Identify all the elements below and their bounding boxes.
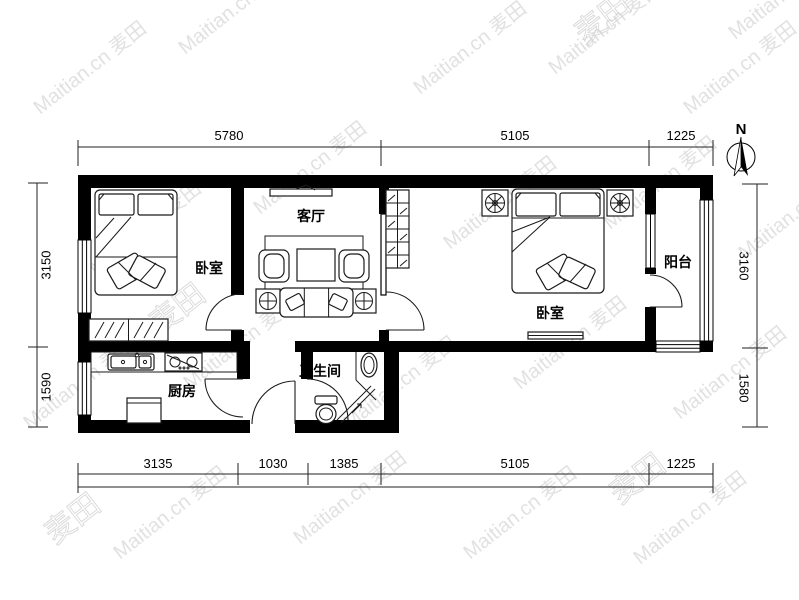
wall-balcony-sep-bottom: [645, 307, 656, 352]
window-balcony-right: [700, 200, 713, 341]
watermark-text: Maitian.cn 麦田: [174, 0, 296, 59]
door-bedroom-left: [206, 294, 242, 330]
toilet: [315, 396, 337, 424]
watermark-text: Maitian.cn 麦田: [409, 0, 531, 99]
room-label-kitchen: 厨房: [168, 383, 196, 399]
window-kitchen: [78, 362, 91, 415]
sofa: [280, 288, 353, 317]
bed-right: [512, 189, 604, 293]
watermark-text: Maitian.cn 麦田: [669, 322, 791, 424]
kitchen-appliance: [127, 398, 161, 423]
window-balcony-bottom: [656, 341, 700, 352]
kitchen-stove: [165, 353, 202, 371]
room-label-balcony: 阳台: [664, 254, 692, 270]
side-table-right: [352, 289, 376, 313]
nightstand-fan-left: [482, 190, 508, 216]
watermark-text: Maitian.cn 麦田: [734, 162, 799, 264]
door-bedroom-right: [386, 292, 424, 330]
room-label-bedroom-left: 卧室: [195, 260, 223, 276]
wardrobe: [386, 190, 409, 268]
wall-mid-bath-top: [295, 341, 397, 352]
nightstand-fan-right: [607, 190, 633, 216]
wall-balcony-sep-top: [645, 188, 656, 214]
room-label-bedroom-right: 卧室: [536, 305, 564, 321]
dim-top-5780: 5780: [215, 128, 244, 143]
wall-balcony-right-top: [700, 188, 713, 200]
side-table-left: [256, 289, 280, 313]
dim-bottom-1030: 1030: [259, 456, 288, 471]
coffee-table: [297, 249, 335, 281]
door-balcony: [650, 275, 682, 307]
floorplan-canvas: Maitian.cn 麦田 Maitian.cn 麦田 Maitian.cn 麦…: [0, 0, 799, 600]
heater-bedroom-right: [528, 332, 583, 339]
compass-needle-light: [734, 137, 741, 176]
watermark-logo: 麦田: [39, 488, 107, 551]
wall-bedroomR-bottom: [386, 341, 645, 352]
window-balcony-separator: [646, 214, 655, 268]
watermark-text: Maitian.cn 麦田: [459, 462, 581, 564]
wall-kitchen-right: [237, 352, 250, 379]
watermark-text: Maitian.cn 麦田: [109, 462, 231, 564]
dim-bottom-1385: 1385: [330, 456, 359, 471]
watermark-text: Maitian.cn 麦田: [29, 17, 151, 119]
wall-bath-right: [384, 341, 399, 433]
wall-balcony-corner: [700, 341, 713, 352]
watermark-logo: 麦田: [604, 448, 672, 511]
dim-bottom-1225: 1225: [667, 456, 696, 471]
dim-top-1225: 1225: [667, 128, 696, 143]
room-label-bathroom: 卫生间: [299, 363, 341, 379]
sofa-set: [256, 236, 376, 317]
watermark-text: Maitian.cn 麦田: [249, 117, 371, 219]
window-bedroomL: [78, 240, 91, 313]
compass: N: [727, 121, 755, 176]
compass-north-label: N: [736, 121, 747, 138]
room-label-living-room: 客厅: [296, 208, 325, 224]
floorplan-svg: Maitian.cn 麦田 Maitian.cn 麦田 Maitian.cn 麦…: [0, 0, 799, 600]
wall-mid-kitchen-top: [78, 341, 250, 352]
wall-bedroomL-right-stub: [231, 330, 244, 341]
wall-bottom-kitchen: [78, 420, 250, 433]
door-kitchen: [205, 379, 243, 417]
radiator-shoe-rack: [89, 319, 168, 341]
wall-bedroomL-right: [231, 188, 244, 295]
dim-right-1580: 1580: [737, 374, 752, 403]
wall-left-upper: [78, 188, 91, 240]
dim-bottom-3135: 3135: [144, 456, 173, 471]
dim-bottom-5105: 5105: [501, 456, 530, 471]
wall-living-right-thin: [381, 214, 386, 295]
wall-living-right-stub: [379, 330, 389, 341]
bed-left: [95, 190, 177, 295]
wall-bottom-bath: [295, 420, 397, 433]
dim-left-3150: 3150: [39, 251, 54, 280]
kitchen-sink: [108, 353, 154, 370]
dim-left-1590: 1590: [39, 373, 54, 402]
door-entry: [252, 381, 295, 424]
dim-right-3160: 3160: [737, 252, 752, 281]
wall-top: [78, 175, 713, 188]
washbasin: [361, 353, 377, 377]
wall-balcony-sep-stub: [645, 268, 656, 274]
dim-top-5105: 5105: [501, 128, 530, 143]
